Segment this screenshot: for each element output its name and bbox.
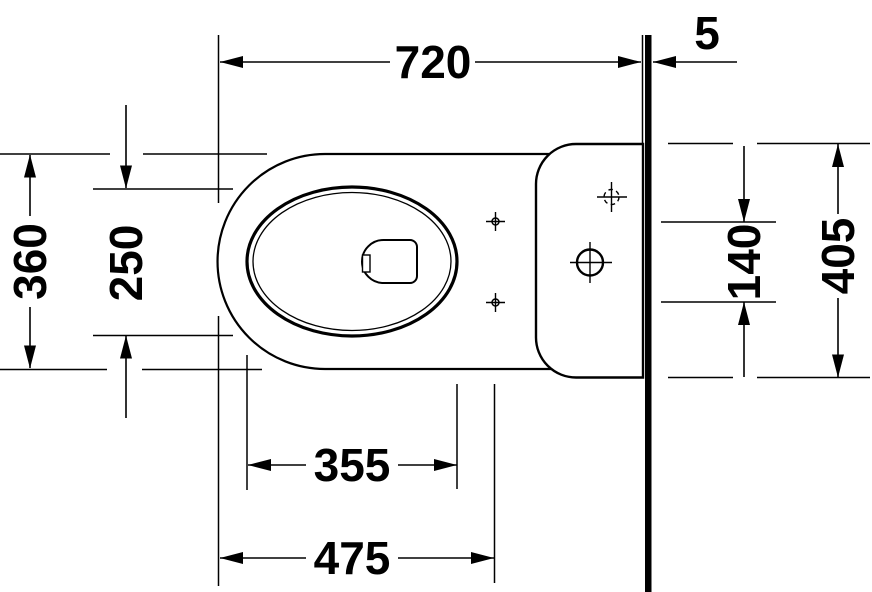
label-seat-opening-width: 250 [100, 225, 152, 302]
label-front-to-wall: 720 [395, 36, 472, 88]
toilet-body [218, 144, 643, 378]
label-tank-width: 405 [812, 218, 864, 295]
wall-section-bar [645, 35, 652, 592]
label-fixing-holes-spacing: 140 [718, 224, 770, 301]
technical-drawing-page: 720 5 360 250 140 405 355 475 [0, 0, 872, 592]
toilet-plan-drawing: 720 5 360 250 140 405 355 475 [0, 0, 872, 592]
label-seat-opening-length: 355 [314, 439, 391, 491]
label-body-width: 360 [4, 223, 56, 300]
label-front-to-fixing-holes: 475 [314, 532, 391, 584]
flush-opening-detail [363, 255, 371, 272]
label-wall-thickness: 5 [694, 7, 720, 59]
wall [645, 35, 652, 592]
